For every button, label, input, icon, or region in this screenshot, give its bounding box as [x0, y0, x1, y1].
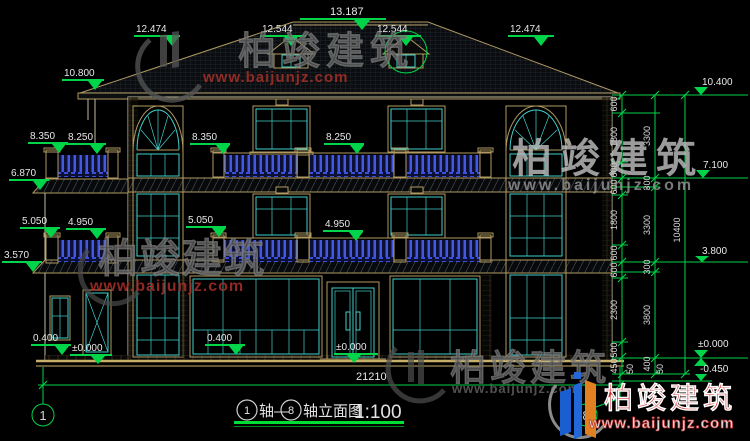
bottom-dimension: 21210: [38, 367, 624, 407]
svg-text:5.050: 5.050: [22, 216, 47, 227]
svg-text:4.950: 4.950: [325, 219, 350, 230]
svg-text:600: 600: [609, 162, 619, 177]
svg-text:3300: 3300: [642, 215, 652, 235]
cad-elevation-canvas: 13.187 12.544 12.544 12.474 12.474 10.80…: [0, 0, 750, 441]
dim-total: 21210: [356, 371, 387, 383]
dim-value-outer: 10400: [672, 217, 682, 242]
arched-bay-left: [133, 106, 183, 357]
svg-text:0.400: 0.400: [33, 333, 58, 344]
svg-text:8.250: 8.250: [326, 132, 351, 143]
svg-text:2300: 2300: [609, 300, 619, 320]
level-marker-f3-right: 7.100: [612, 160, 748, 178]
svg-text:3300: 3300: [642, 126, 652, 146]
level-marker-ground-right: ±0.000: [612, 339, 748, 366]
svg-text:300: 300: [642, 175, 652, 190]
svg-text:±0.000: ±0.000: [698, 339, 729, 350]
svg-text:1:100: 1:100: [354, 402, 402, 423]
svg-text:12.544: 12.544: [377, 24, 408, 35]
window-f2-left: [253, 187, 310, 238]
svg-text:8.350: 8.350: [30, 131, 55, 142]
svg-text:450: 450: [609, 358, 619, 373]
svg-text:-0.450: -0.450: [700, 364, 729, 375]
svg-text:400: 400: [642, 356, 652, 371]
svg-text:600: 600: [609, 262, 619, 277]
window-wall-f1-left: [180, 275, 322, 357]
svg-text:7.100: 7.100: [703, 160, 728, 171]
dim-chain-right: 600 1800 600 600 1800 600 600 2300 500 4…: [609, 91, 690, 378]
logo-url-text: www.baijunjz.com: [588, 415, 734, 432]
svg-text:10.400: 10.400: [702, 77, 733, 88]
building: [33, 22, 624, 366]
svg-text:6.870: 6.870: [11, 168, 36, 179]
level-marker-f2a-mid: 5.050: [186, 215, 226, 237]
svg-text:12.474: 12.474: [510, 24, 541, 35]
svg-text:1800: 1800: [609, 210, 619, 230]
level-marker-wing-band: 3.570: [2, 250, 42, 272]
logo-brand-text: 柏竣建筑: [604, 381, 736, 415]
svg-text:600: 600: [609, 245, 619, 260]
svg-text:3.800: 3.800: [702, 246, 727, 257]
window-f3-left: [250, 99, 313, 155]
level-marker-f3a-mid: 8.350: [190, 132, 230, 154]
svg-text:1800: 1800: [609, 127, 619, 147]
level-marker-roof-right: 12.474: [508, 24, 554, 46]
level-marker-eave-right: 10.400: [612, 77, 748, 95]
level-marker-f3b-wing: 8.250: [66, 132, 106, 154]
ground-line: [36, 361, 624, 366]
level-marker-f2-right: 3.800: [612, 246, 748, 262]
svg-text:4.950: 4.950: [68, 217, 93, 228]
floor-band-3: [128, 178, 612, 192]
window-wall-f1-right: [390, 275, 492, 357]
svg-text:1: 1: [244, 405, 250, 417]
level-marker-porch-wing: 0.400: [31, 333, 71, 355]
level-marker-f2b-wing: 4.950: [66, 217, 106, 239]
svg-text:500: 500: [609, 342, 619, 357]
svg-text:3.570: 3.570: [4, 250, 29, 261]
svg-text:600: 600: [609, 96, 619, 111]
svg-text:13.187: 13.187: [330, 6, 364, 18]
dim-value-small-2: 50: [655, 364, 665, 374]
svg-text:12.474: 12.474: [136, 24, 167, 35]
brand-logo: 柏竣建筑 www.baijunjz.com: [550, 372, 736, 439]
dim-value-small-1: 50: [625, 364, 635, 374]
svg-text:8.350: 8.350: [192, 132, 217, 143]
window-f2-right: [388, 187, 445, 238]
svg-text:5.050: 5.050: [188, 215, 213, 226]
svg-text:www.baijunjz.com: www.baijunjz.com: [89, 278, 244, 295]
svg-text:300: 300: [642, 259, 652, 274]
window-f3-right: [388, 99, 445, 152]
drawing-title: 1 轴— 8 轴立面图 1:100: [234, 400, 404, 427]
arched-bay-right: [506, 106, 566, 357]
level-marker-roof-left: 12.474: [134, 24, 180, 46]
svg-text:10.800: 10.800: [64, 68, 95, 79]
elevation-drawing: 13.187 12.544 12.544 12.474 12.474 10.80…: [0, 0, 750, 441]
svg-text:12.544: 12.544: [262, 24, 293, 35]
axis-bubble-1: 1: [32, 404, 54, 426]
level-marker-porch-mid: 0.400: [205, 333, 245, 355]
level-marker-f3b-mid: 8.250: [324, 132, 364, 154]
svg-text:3800: 3800: [642, 305, 652, 325]
svg-text:0.400: 0.400: [207, 333, 232, 344]
svg-text:8: 8: [288, 405, 294, 417]
svg-text:1: 1: [39, 408, 46, 423]
svg-text:8.250: 8.250: [68, 132, 93, 143]
svg-text:±0.000: ±0.000: [72, 343, 103, 354]
dim-values-middle: 3300 300 3300 300 3800 400: [642, 126, 652, 372]
svg-text:±0.000: ±0.000: [336, 342, 367, 353]
svg-text:600: 600: [609, 179, 619, 194]
